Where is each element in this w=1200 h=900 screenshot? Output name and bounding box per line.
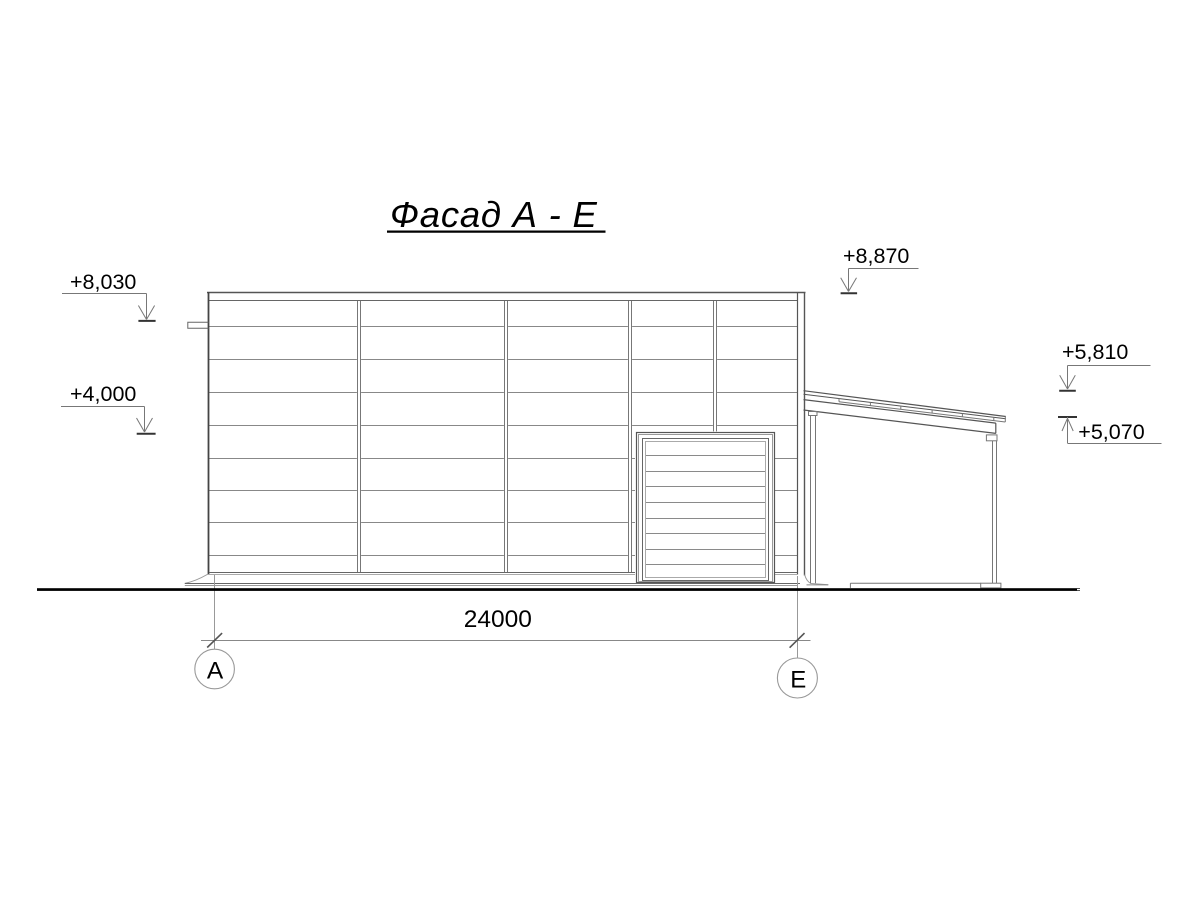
svg-text:Фасад А - Е: Фасад А - Е — [390, 194, 598, 235]
svg-text:+5,810: +5,810 — [1062, 340, 1128, 364]
svg-text:+8,870: +8,870 — [843, 244, 909, 268]
svg-text:+8,030: +8,030 — [70, 270, 136, 294]
svg-text:E: E — [790, 666, 806, 693]
svg-text:A: A — [207, 658, 224, 685]
svg-text:+5,070: +5,070 — [1078, 420, 1144, 444]
svg-text:24000: 24000 — [464, 606, 532, 633]
svg-text:+4,000: +4,000 — [70, 382, 136, 406]
